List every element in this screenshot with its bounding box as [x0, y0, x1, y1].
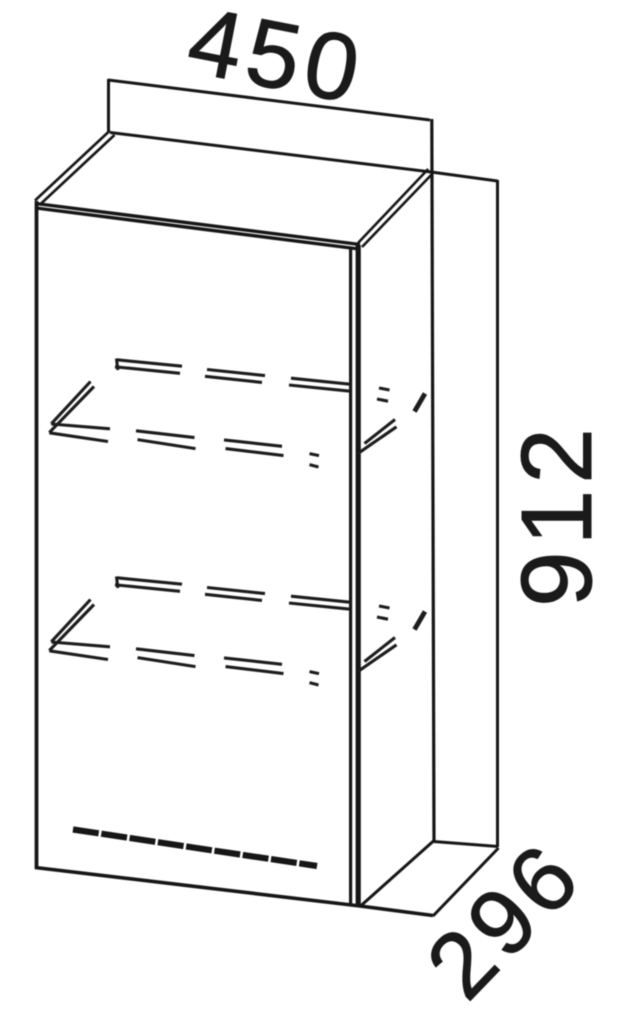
svg-text:912: 912: [501, 422, 613, 607]
